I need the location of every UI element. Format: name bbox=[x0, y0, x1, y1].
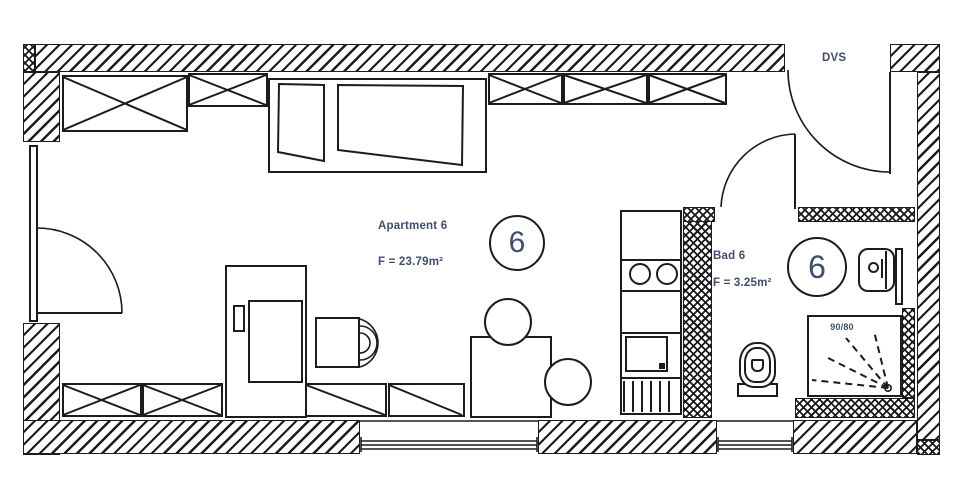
wall-bath-top-left bbox=[683, 207, 715, 222]
stool-1 bbox=[484, 298, 532, 346]
side-chair bbox=[315, 317, 360, 368]
wardrobe-2 bbox=[188, 73, 268, 107]
wall-corner-top-right bbox=[890, 44, 940, 72]
wall-bottom-middle bbox=[538, 420, 717, 454]
dish-drainer-bar bbox=[659, 381, 661, 412]
bathroom-area-label: F = 3.25m² bbox=[713, 277, 772, 289]
dish-drainer-bar bbox=[632, 381, 634, 412]
wardrobe-1 bbox=[62, 75, 188, 132]
window-door-swing bbox=[37, 228, 122, 313]
cooktop-burner-2 bbox=[656, 263, 678, 285]
wall-bottom-left bbox=[23, 420, 360, 454]
bathroom-door-swing bbox=[721, 134, 795, 209]
apartment-label: Apartment 6 bbox=[378, 220, 447, 232]
wardrobe-5 bbox=[648, 73, 727, 105]
faucet-handle bbox=[881, 259, 883, 278]
wall-left-pier-top bbox=[23, 72, 60, 142]
bathroom-number-badge: 6 bbox=[787, 237, 847, 297]
bathroom-label: Bad 6 bbox=[713, 250, 745, 262]
wall-below-shower bbox=[795, 398, 915, 418]
washbasin-edge bbox=[885, 251, 887, 289]
wall-right bbox=[917, 72, 940, 440]
kitchen-divider bbox=[620, 377, 682, 379]
wall-top bbox=[35, 44, 785, 72]
kitchen-divider bbox=[620, 332, 682, 334]
desk-monitor bbox=[233, 305, 245, 332]
dining-table bbox=[470, 336, 552, 418]
shower-size-label: 90/80 bbox=[807, 322, 877, 332]
entrance-door-swing bbox=[788, 70, 890, 174]
wardrobe-6 bbox=[62, 383, 142, 417]
wardrobe-3 bbox=[488, 73, 563, 105]
wall-kitchen-bath bbox=[683, 207, 712, 418]
kitchen-divider bbox=[620, 290, 682, 292]
lowboard-1 bbox=[305, 383, 387, 417]
wall-corner-bottom-right bbox=[917, 440, 940, 455]
faucet-icon bbox=[868, 262, 879, 273]
sink-drain bbox=[659, 363, 665, 369]
chair-back-icon bbox=[360, 319, 378, 367]
kitchen-divider bbox=[620, 259, 682, 261]
cooktop-burner-1 bbox=[629, 263, 651, 285]
apartment-number: 6 bbox=[509, 226, 526, 260]
wall-shower-right bbox=[902, 308, 915, 398]
dish-drainer-bar bbox=[623, 381, 625, 412]
wall-corner-top-left bbox=[23, 44, 35, 72]
window-left bbox=[29, 145, 38, 322]
floor-plan: Apartment 6 F = 23.79m² 6 Bad 6 F = 3.25… bbox=[0, 0, 960, 489]
window-bottom-main bbox=[360, 421, 538, 452]
desk-chair-seat bbox=[248, 300, 303, 383]
dish-drainer-bar bbox=[650, 381, 652, 412]
wall-bath-top-right bbox=[798, 207, 915, 222]
apartment-number-badge: 6 bbox=[489, 215, 545, 271]
wardrobe-4 bbox=[563, 73, 648, 105]
wardrobe-7 bbox=[142, 383, 223, 417]
window-bottom-bath bbox=[717, 421, 793, 452]
stool-2 bbox=[544, 358, 592, 406]
dish-drainer-bar bbox=[641, 381, 643, 412]
toilet-seat bbox=[751, 359, 764, 372]
bathroom-number: 6 bbox=[808, 249, 826, 286]
lowboard-2 bbox=[388, 383, 465, 417]
bath-shelf bbox=[895, 248, 903, 305]
corridor-label: DVS bbox=[822, 52, 846, 64]
apartment-area-label: F = 23.79m² bbox=[378, 256, 443, 268]
bed bbox=[268, 78, 487, 173]
wall-bottom-right bbox=[793, 420, 917, 454]
dish-drainer-bar bbox=[668, 381, 670, 412]
